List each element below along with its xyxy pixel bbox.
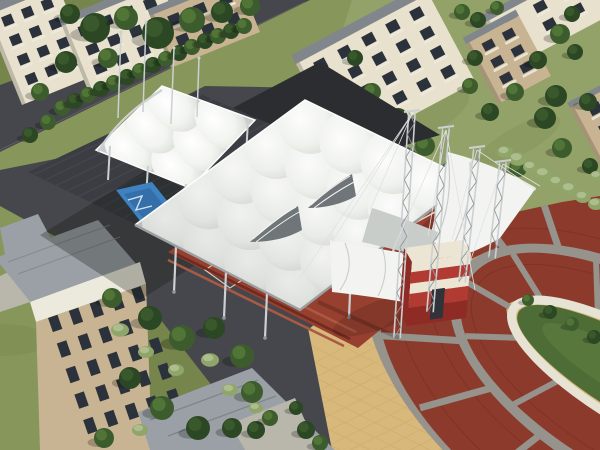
tree-highlight	[464, 79, 473, 88]
architectural-render	[0, 0, 600, 450]
column-base	[222, 316, 226, 320]
column-base	[263, 336, 267, 340]
tree-highlight	[100, 50, 111, 61]
tree-highlight	[569, 45, 578, 54]
tree-highlight	[140, 308, 153, 321]
shrub-highlight	[511, 153, 522, 160]
tree-highlight	[249, 422, 259, 432]
flagpole-finial	[173, 47, 176, 50]
tree-highlight	[243, 383, 255, 395]
tree-highlight	[213, 3, 225, 15]
tree-highlight	[554, 140, 565, 151]
tree-highlight	[544, 306, 552, 314]
tree-highlight	[290, 402, 298, 410]
tree-highlight	[566, 318, 574, 326]
shrub-highlight	[563, 183, 574, 190]
shrub-highlight	[499, 147, 509, 153]
tree-highlight	[57, 53, 69, 65]
tree-highlight	[581, 94, 591, 104]
tree-highlight	[182, 9, 196, 23]
tree-highlight	[469, 51, 478, 60]
tree-highlight	[456, 5, 465, 14]
tree-highlight	[264, 411, 273, 420]
tree-highlight	[314, 436, 323, 445]
shrub-highlight	[224, 385, 234, 391]
tree-highlight	[238, 19, 247, 28]
shrub-highlight	[203, 354, 214, 361]
tree-highlight	[584, 159, 593, 168]
tree-highlight	[24, 128, 33, 137]
tree-highlight	[188, 418, 201, 431]
tree-highlight	[552, 26, 563, 37]
tree-highlight	[566, 7, 575, 16]
tree-highlight	[42, 115, 51, 124]
tree-highlight	[547, 87, 559, 99]
tree-highlight	[62, 6, 73, 17]
tree-highlight	[152, 398, 165, 411]
render-canvas	[0, 0, 600, 450]
tree-highlight	[104, 290, 115, 301]
tree-highlight	[172, 327, 186, 341]
shrub-highlight	[525, 162, 535, 168]
tree-highlight	[299, 422, 309, 432]
shrub-highlight	[134, 425, 144, 431]
tree-highlight	[531, 52, 541, 62]
flagpole-finial	[198, 57, 201, 60]
tree-highlight	[83, 15, 100, 32]
shrub-highlight	[590, 199, 600, 205]
shrub-highlight	[577, 192, 587, 198]
shrub-highlight	[250, 403, 258, 409]
tree-highlight	[96, 430, 107, 441]
tree-highlight	[483, 104, 493, 114]
shrub-highlight	[551, 177, 561, 183]
flagpole-finial	[120, 31, 123, 34]
tree-highlight	[349, 51, 358, 60]
tree-highlight	[472, 13, 481, 22]
tree-highlight	[536, 109, 548, 121]
tree-highlight	[145, 19, 163, 37]
tree-highlight	[523, 295, 530, 302]
flagpole-finial	[145, 21, 148, 24]
shrub-highlight	[537, 168, 548, 175]
column-base	[172, 290, 176, 294]
tree-highlight	[224, 420, 235, 431]
shrub-highlight	[140, 347, 150, 353]
tree-highlight	[232, 346, 245, 359]
tree-highlight	[491, 2, 499, 10]
tree-highlight	[508, 84, 518, 94]
tree-highlight	[116, 8, 129, 21]
tree-highlight	[33, 84, 43, 94]
shrub-highlight	[113, 324, 124, 331]
shrub-highlight	[591, 171, 599, 177]
tree-highlight	[205, 319, 217, 331]
shrub-highlight	[170, 365, 180, 371]
tree-highlight	[588, 331, 596, 339]
tree-highlight	[121, 369, 133, 381]
